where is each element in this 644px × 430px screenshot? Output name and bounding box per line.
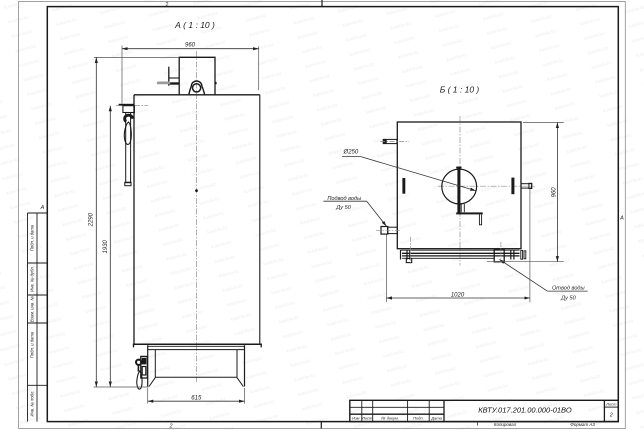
svg-text:1930: 1930 xyxy=(103,239,109,253)
svg-text:Формат А3: Формат А3 xyxy=(570,422,595,427)
svg-text:2: 2 xyxy=(168,424,172,430)
svg-text:Инв. № подл.: Инв. № подл. xyxy=(30,391,35,417)
svg-text:Лист: Лист xyxy=(605,402,617,407)
svg-text:960: 960 xyxy=(185,43,196,49)
svg-text:2: 2 xyxy=(165,2,168,8)
svg-text:960: 960 xyxy=(552,187,558,198)
svg-text:Ду 50: Ду 50 xyxy=(335,205,351,211)
svg-text:А: А xyxy=(40,205,45,211)
svg-text:Взам. инв. №: Взам. инв. № xyxy=(30,296,35,322)
svg-text:615: 615 xyxy=(191,396,202,402)
svg-text:Инв. № дубл.: Инв. № дубл. xyxy=(30,266,35,292)
svg-text:Подп. и дата: Подп. и дата xyxy=(30,224,35,251)
svg-text:Подп. и дата: Подп. и дата xyxy=(30,331,35,358)
svg-text:Ду 50: Ду 50 xyxy=(560,296,576,302)
svg-text:№ докум.: № докум. xyxy=(381,416,399,421)
svg-text:А: А xyxy=(619,216,624,222)
svg-text:Изм: Изм xyxy=(352,416,360,421)
svg-text:Копировал: Копировал xyxy=(494,422,517,427)
svg-text:Ø250: Ø250 xyxy=(343,150,359,156)
svg-text:Лист: Лист xyxy=(361,416,373,421)
svg-text:КВТУ.017.201.00.000-01ВО: КВТУ.017.201.00.000-01ВО xyxy=(478,406,572,415)
svg-text:А ( 1 : 10 ): А ( 1 : 10 ) xyxy=(174,20,215,30)
svg-text:2: 2 xyxy=(609,413,613,419)
svg-text:1020: 1020 xyxy=(451,292,465,298)
svg-text:Подп.: Подп. xyxy=(413,416,424,421)
svg-text:Б ( 1 : 10 ): Б ( 1 : 10 ) xyxy=(440,85,480,95)
svg-text:2290: 2290 xyxy=(89,212,95,227)
svg-text:Дата: Дата xyxy=(430,416,442,421)
